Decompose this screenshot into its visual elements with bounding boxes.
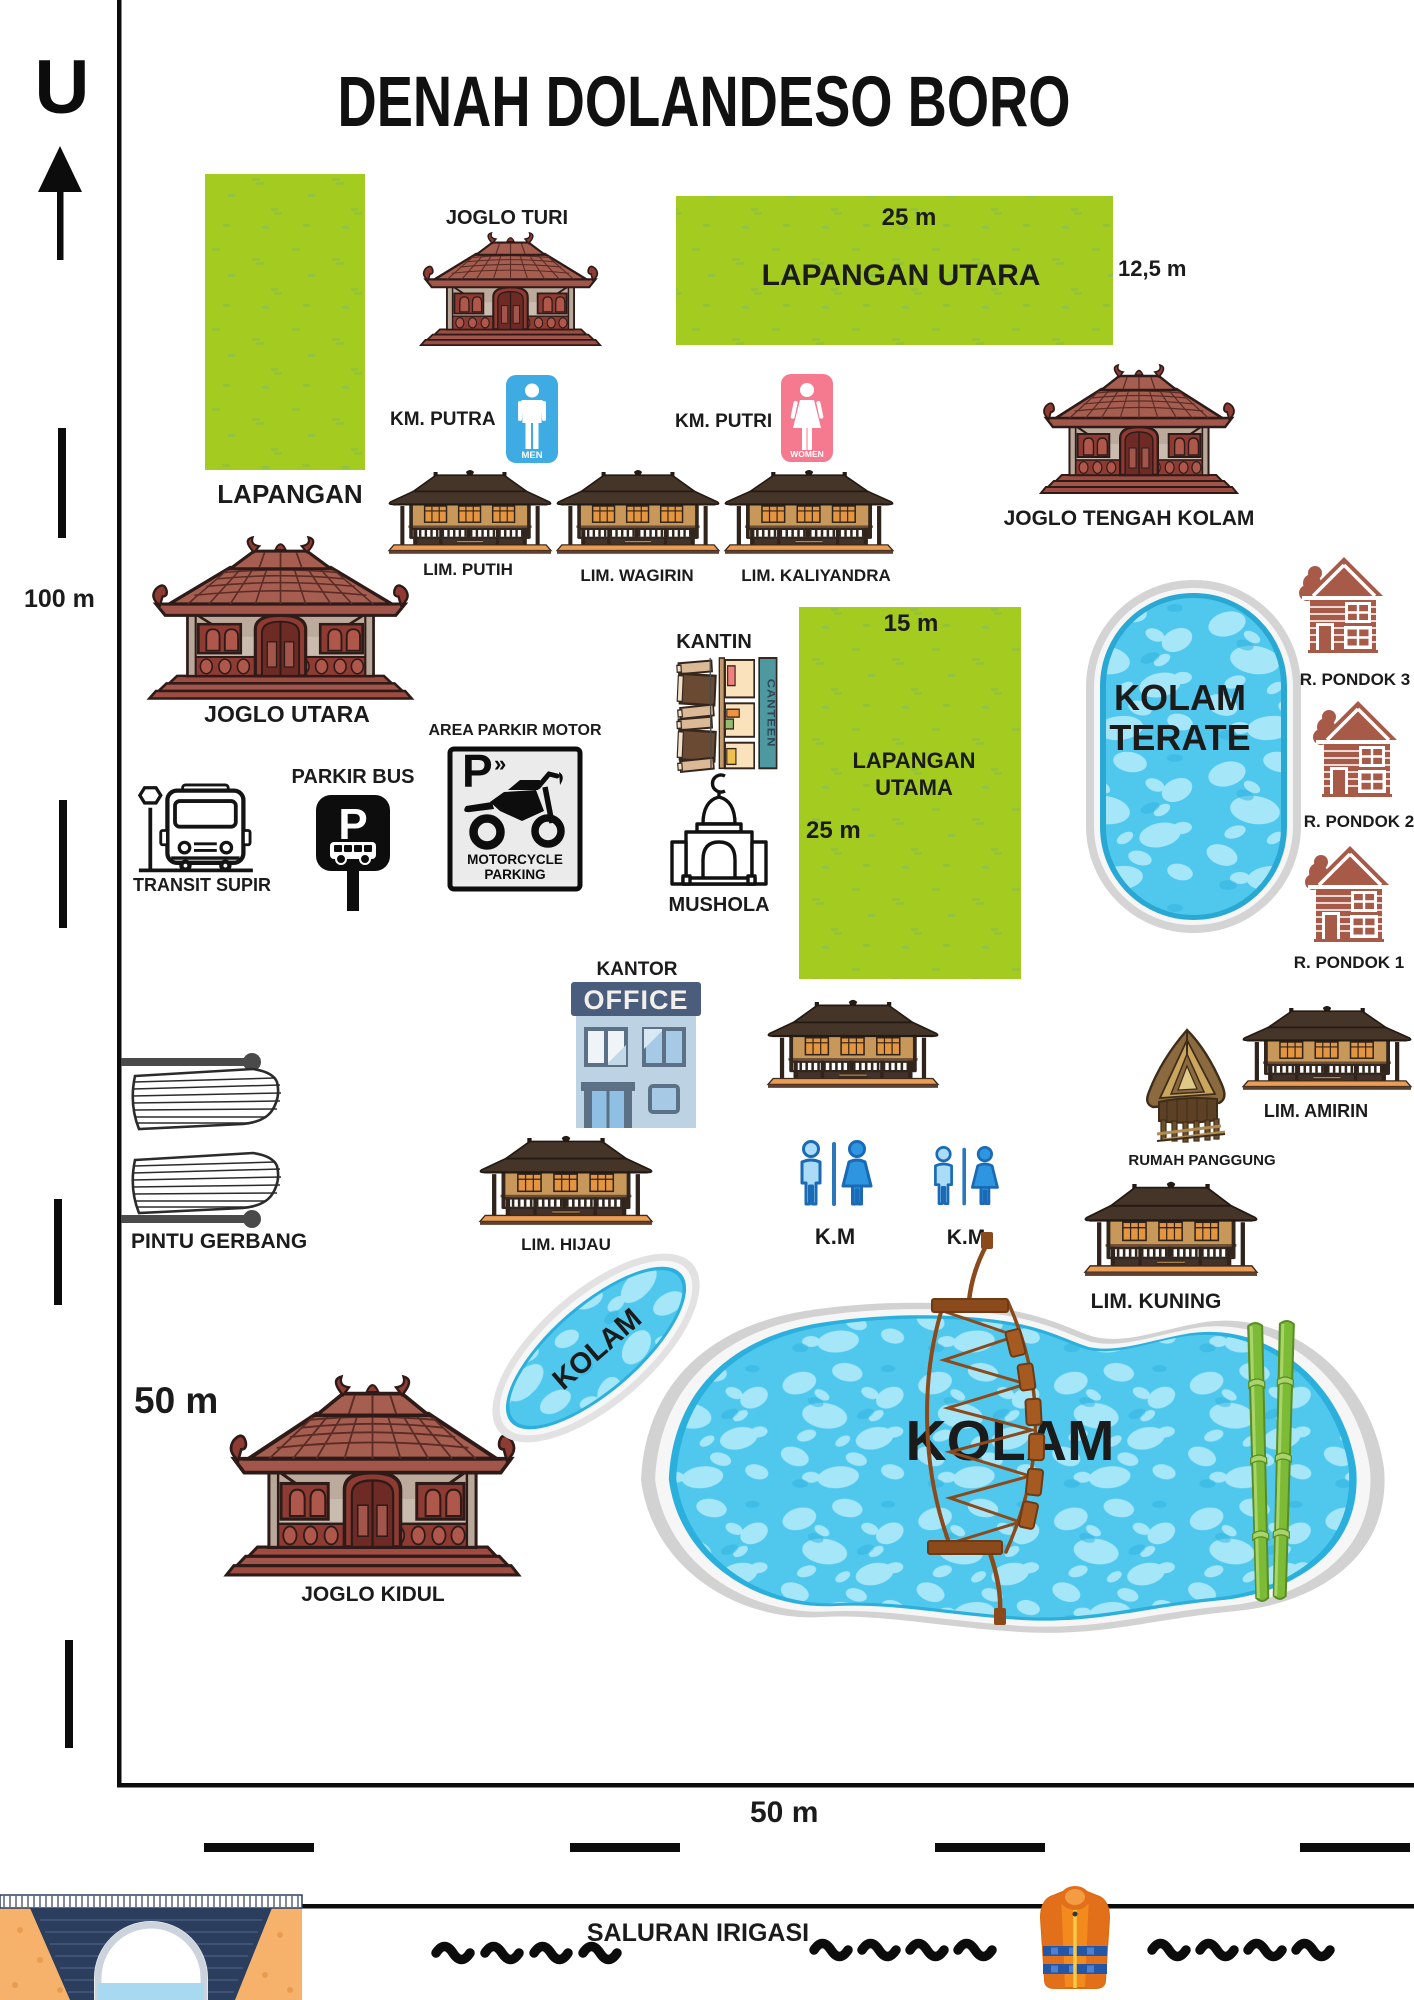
svg-text:LIM. AMIRIN: LIM. AMIRIN <box>1264 1101 1368 1121</box>
svg-text:JOGLO TURI: JOGLO TURI <box>446 207 568 229</box>
svg-text:PARKIR BUS: PARKIR BUS <box>292 766 415 788</box>
svg-text:JOGLO KIDUL: JOGLO KIDUL <box>301 1583 445 1606</box>
svg-text:LAPANGAN: LAPANGAN <box>217 479 362 509</box>
svg-text:25 m: 25 m <box>882 204 937 231</box>
svg-text:PINTU GERBANG: PINTU GERBANG <box>131 1230 307 1253</box>
svg-text:AREA PARKIR MOTOR: AREA PARKIR MOTOR <box>428 722 601 739</box>
svg-text:JOGLO TENGAH KOLAM: JOGLO TENGAH KOLAM <box>1004 507 1255 530</box>
svg-text:15 m: 15 m <box>884 610 939 637</box>
svg-text:50 m: 50 m <box>750 1796 818 1829</box>
svg-text:RUMAH PANGGUNG: RUMAH PANGGUNG <box>1128 1152 1275 1169</box>
svg-text:12,5 m: 12,5 m <box>1118 256 1187 281</box>
svg-text:LIM. PUTIH: LIM. PUTIH <box>423 560 513 579</box>
svg-text:U: U <box>35 45 90 130</box>
svg-text:LIM. HIJAU: LIM. HIJAU <box>521 1235 611 1254</box>
svg-text:KANTIN: KANTIN <box>676 631 752 653</box>
svg-text:R. PONDOK 2: R. PONDOK 2 <box>1304 812 1414 831</box>
svg-text:25 m: 25 m <box>806 817 861 844</box>
svg-text:DENAH DOLANDESO BORO: DENAH DOLANDESO BORO <box>338 63 1071 142</box>
svg-text:JOGLO UTARA: JOGLO UTARA <box>204 701 370 727</box>
svg-text:KOLAM: KOLAM <box>1114 677 1246 718</box>
svg-text:KOLAM: KOLAM <box>906 1409 1115 1473</box>
svg-text:LAPANGAN UTARA: LAPANGAN UTARA <box>762 259 1041 292</box>
svg-text:LIM. KUNING: LIM. KUNING <box>1091 1290 1222 1313</box>
svg-text:KANTOR: KANTOR <box>597 959 678 980</box>
svg-text:50 m: 50 m <box>134 1380 218 1421</box>
svg-text:KM. PUTRI: KM. PUTRI <box>675 411 772 432</box>
svg-text:LAPANGAN: LAPANGAN <box>852 748 975 773</box>
svg-text:SALURAN IRIGASI: SALURAN IRIGASI <box>587 1919 809 1947</box>
svg-text:K.M: K.M <box>815 1224 855 1249</box>
svg-text:UTAMA: UTAMA <box>875 775 953 800</box>
svg-text:TRANSIT SUPIR: TRANSIT SUPIR <box>133 875 271 895</box>
svg-text:MUSHOLA: MUSHOLA <box>668 894 769 916</box>
svg-text:R. PONDOK 3: R. PONDOK 3 <box>1300 670 1411 689</box>
svg-text:LIM. WAGIRIN: LIM. WAGIRIN <box>580 566 693 585</box>
svg-text:KM. PUTRA: KM. PUTRA <box>390 409 496 430</box>
svg-text:R. PONDOK 1: R. PONDOK 1 <box>1294 953 1405 972</box>
svg-text:K.M: K.M <box>947 1226 986 1249</box>
svg-text:TERATE: TERATE <box>1109 717 1250 758</box>
svg-text:100 m: 100 m <box>24 585 95 613</box>
svg-text:LIM. KALIYANDRA: LIM. KALIYANDRA <box>741 566 891 585</box>
